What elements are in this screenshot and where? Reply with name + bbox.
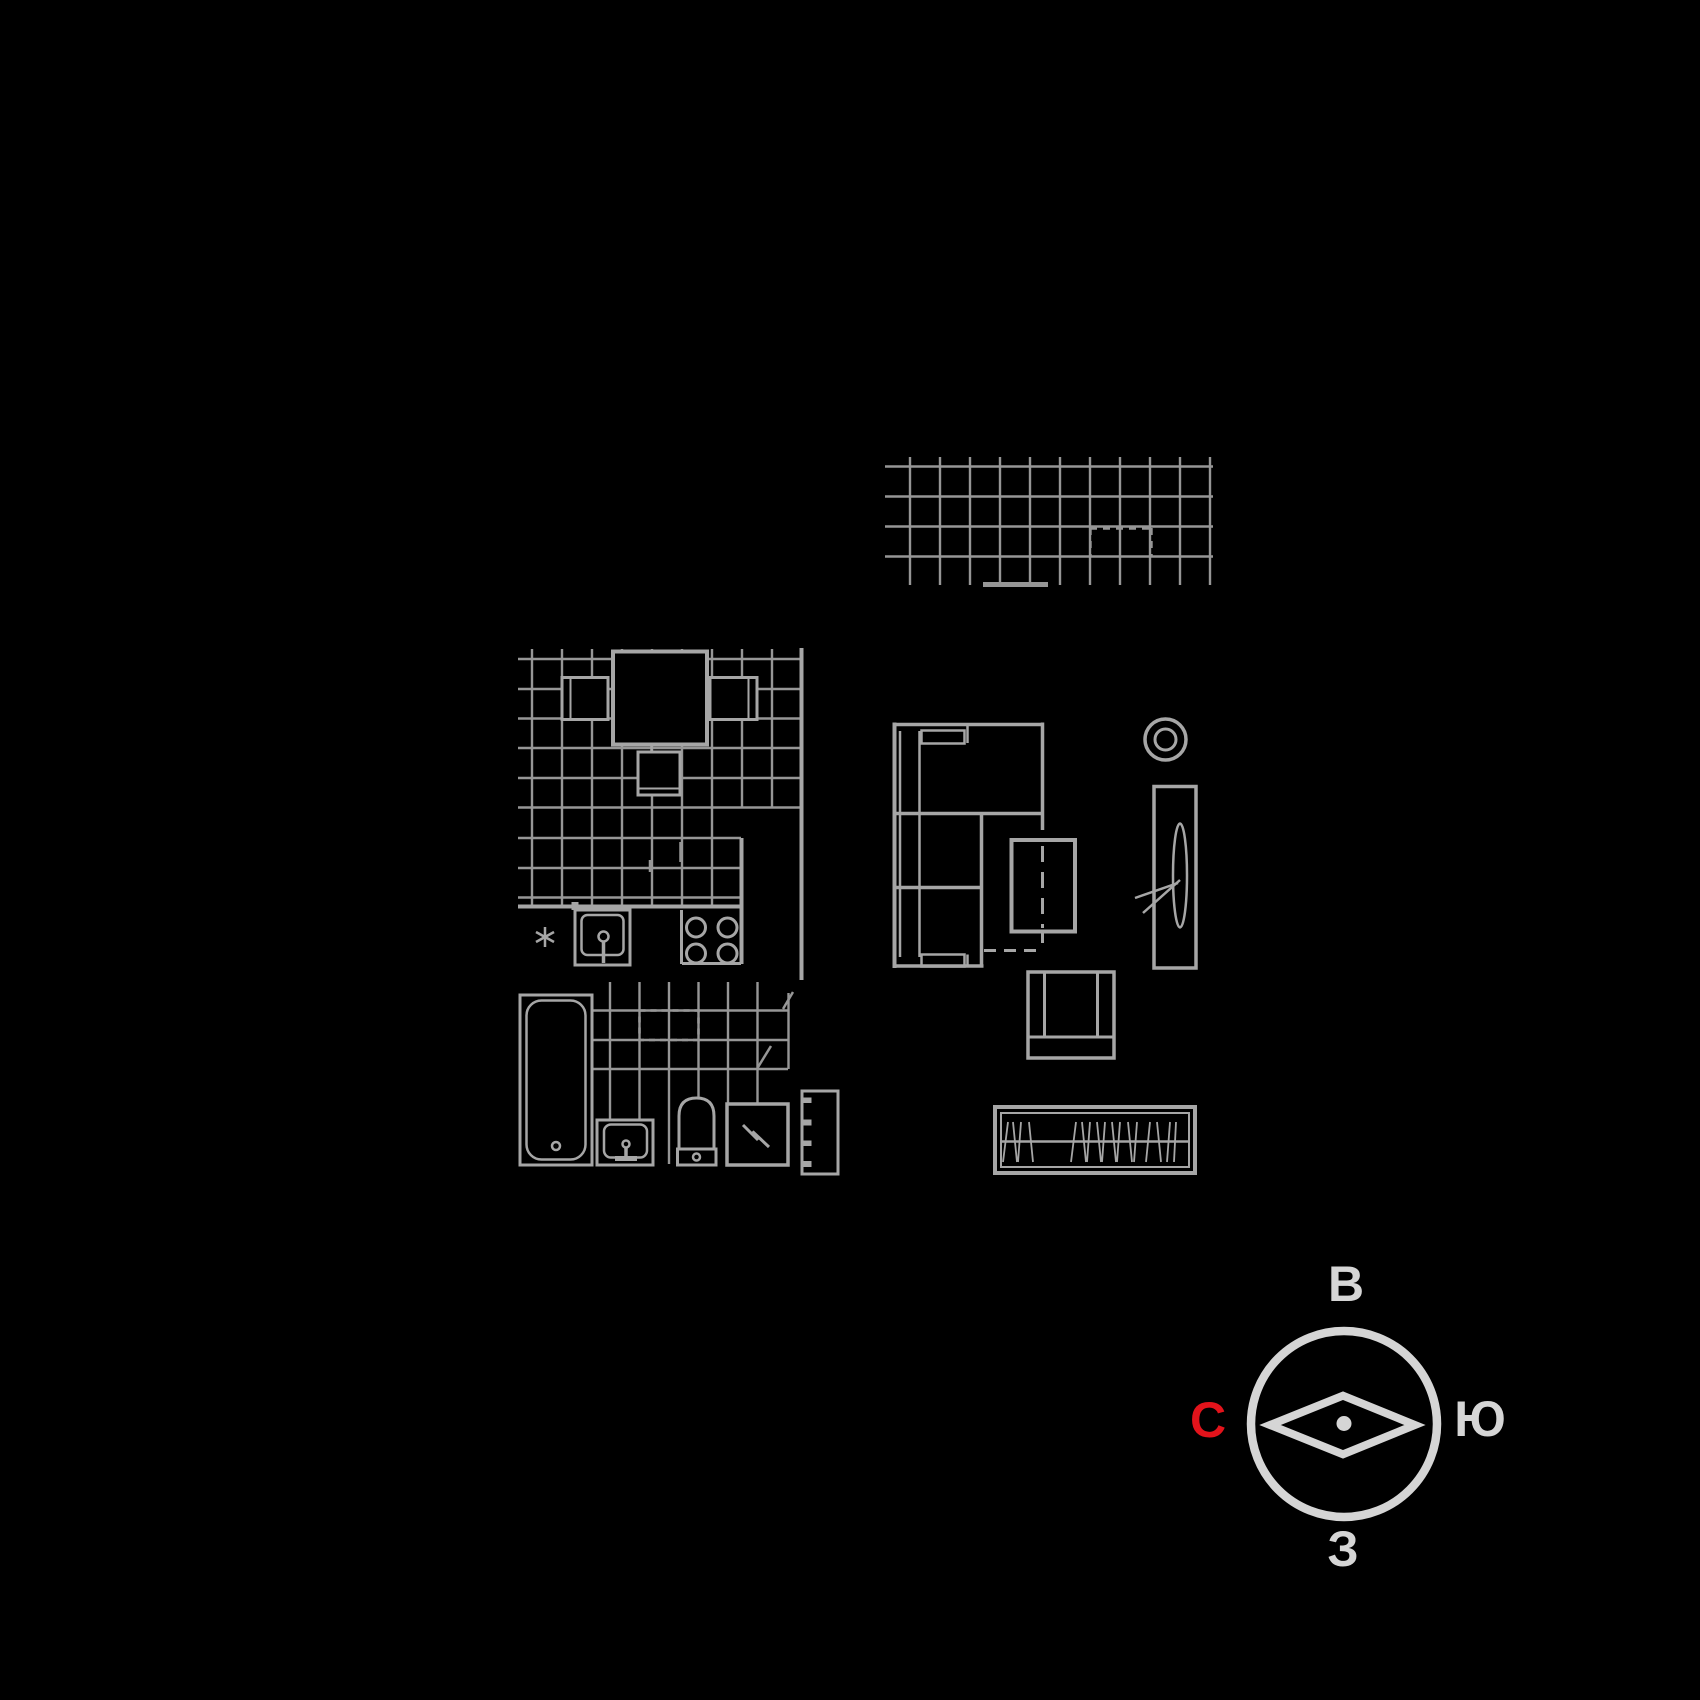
burner-icon	[687, 944, 706, 963]
floor-plan-canvas: В Ю З С	[0, 0, 1700, 1700]
compass-rose: В Ю З С	[1190, 1256, 1506, 1577]
ceiling-lamp-icon	[1145, 719, 1186, 760]
compass-label-bottom: З	[1327, 1521, 1358, 1577]
toilet	[678, 1098, 717, 1165]
bathroom-area	[520, 982, 838, 1174]
burner-icon	[687, 918, 706, 937]
burner-icon	[718, 944, 737, 963]
bathtub	[520, 995, 592, 1165]
tv-screen	[1173, 824, 1187, 928]
compass-label-right: Ю	[1454, 1391, 1506, 1447]
kitchen-area	[518, 648, 802, 980]
chair-left	[562, 678, 608, 720]
cold-water-asterisk-icon	[536, 927, 554, 947]
living-area	[893, 719, 1196, 1173]
compass-label-top: В	[1328, 1256, 1364, 1312]
chair-bottom	[638, 745, 680, 796]
heated-towel-rail	[802, 1091, 838, 1174]
folding-table	[984, 840, 1075, 951]
chair-right	[710, 678, 757, 720]
balcony-grid-verticals	[910, 457, 1210, 585]
dining-table	[613, 652, 707, 745]
compass-label-left: С	[1190, 1392, 1226, 1448]
compass-center-dot	[1337, 1416, 1352, 1431]
wardrobe-with-hangers	[995, 1107, 1195, 1173]
balcony-grid-horizontals	[885, 467, 1213, 557]
washing-machine	[727, 1104, 788, 1165]
washbasin	[597, 1120, 653, 1165]
balcony-glazing-grid	[885, 457, 1213, 585]
kitchen-sink	[575, 910, 630, 965]
tv-stand	[1135, 787, 1196, 969]
armchair	[1028, 972, 1114, 1058]
burner-icon	[718, 918, 737, 937]
kitchen-tile-grid-lower	[518, 808, 741, 906]
